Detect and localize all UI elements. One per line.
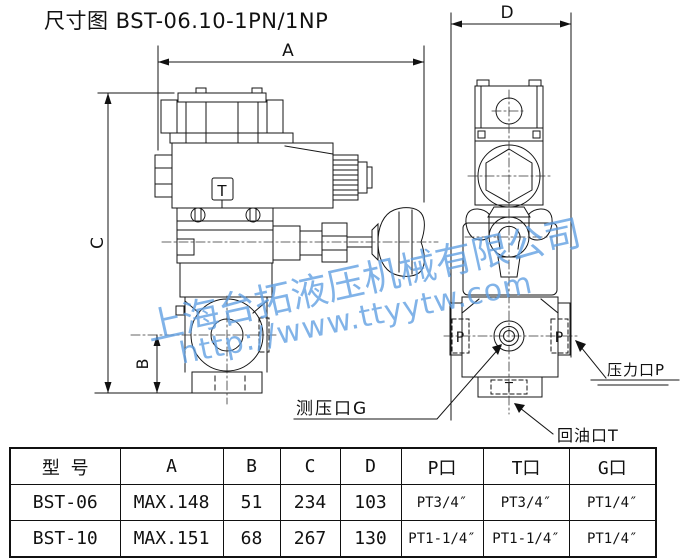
- solenoid-t-mark: T: [216, 182, 227, 200]
- cell-g-port: PT1/4″: [569, 485, 656, 521]
- callout-pressure-port: 压力口P: [575, 340, 679, 385]
- col-header-p-port: P口: [401, 448, 483, 485]
- dim-c-label: C: [88, 237, 108, 249]
- cell-b: 51: [223, 485, 280, 521]
- cell-d: 103: [340, 485, 401, 521]
- spec-table: 型 号 A B C D P口 T口 G口 BST-06 MAX.148 51 2…: [9, 447, 657, 558]
- cell-a: MAX.151: [120, 521, 223, 558]
- dimension-c: C: [88, 93, 205, 393]
- cell-c: 234: [280, 485, 340, 521]
- port-p-right-label: P: [555, 330, 563, 346]
- cell-p-port: PT3/4″: [401, 485, 483, 521]
- front-view: P P T: [444, 80, 577, 414]
- cell-g-port: PT1/4″: [569, 521, 656, 558]
- table-header-row: 型 号 A B C D P口 T口 G口: [10, 448, 656, 485]
- cell-c: 267: [280, 521, 340, 558]
- callout-return-port: 回油口T: [514, 403, 619, 445]
- cell-a: MAX.148: [120, 485, 223, 521]
- dim-b-label: B: [133, 359, 152, 370]
- cell-b: 68: [223, 521, 280, 558]
- port-p-left-label: P: [456, 330, 464, 346]
- side-view: T: [131, 88, 438, 404]
- col-header-d: D: [340, 448, 401, 485]
- col-header-model: 型 号: [10, 448, 120, 485]
- callout-gauge-port: 测压口G: [294, 344, 502, 419]
- gauge-port-label: 测压口G: [296, 399, 368, 419]
- col-header-t-port: T口: [483, 448, 569, 485]
- table-row: BST-10 MAX.151 68 267 130 PT1-1/4″ PT1-1…: [10, 521, 656, 558]
- page-title: 尺寸图 BST-06.10-1PN/1NP: [44, 5, 328, 35]
- table-row: BST-06 MAX.148 51 234 103 PT3/4″ PT3/4″ …: [10, 485, 656, 521]
- cell-t-port: PT1-1/4″: [483, 521, 569, 558]
- dim-a-label: A: [282, 41, 294, 61]
- cell-p-port: PT1-1/4″: [401, 521, 483, 558]
- dimension-drawing-page: 尺寸图 BST-06.10-1PN/1NP: [0, 0, 680, 560]
- col-header-g-port: G口: [569, 448, 656, 485]
- cell-d: 130: [340, 521, 401, 558]
- pressure-port-label: 压力口P: [607, 361, 665, 379]
- dimension-b: B: [133, 335, 161, 393]
- dim-d-label: D: [500, 3, 513, 23]
- cell-model: BST-10: [10, 521, 120, 558]
- valve-technical-drawing: T: [0, 0, 680, 450]
- cell-t-port: PT3/4″: [483, 485, 569, 521]
- port-t-bottom-label: T: [504, 381, 513, 396]
- dimension-a: A: [158, 41, 424, 202]
- centerlines-left: [131, 242, 438, 404]
- col-header-c: C: [280, 448, 340, 485]
- col-header-b: B: [223, 448, 280, 485]
- col-header-a: A: [120, 448, 223, 485]
- return-port-label: 回油口T: [557, 426, 619, 445]
- cell-model: BST-06: [10, 485, 120, 521]
